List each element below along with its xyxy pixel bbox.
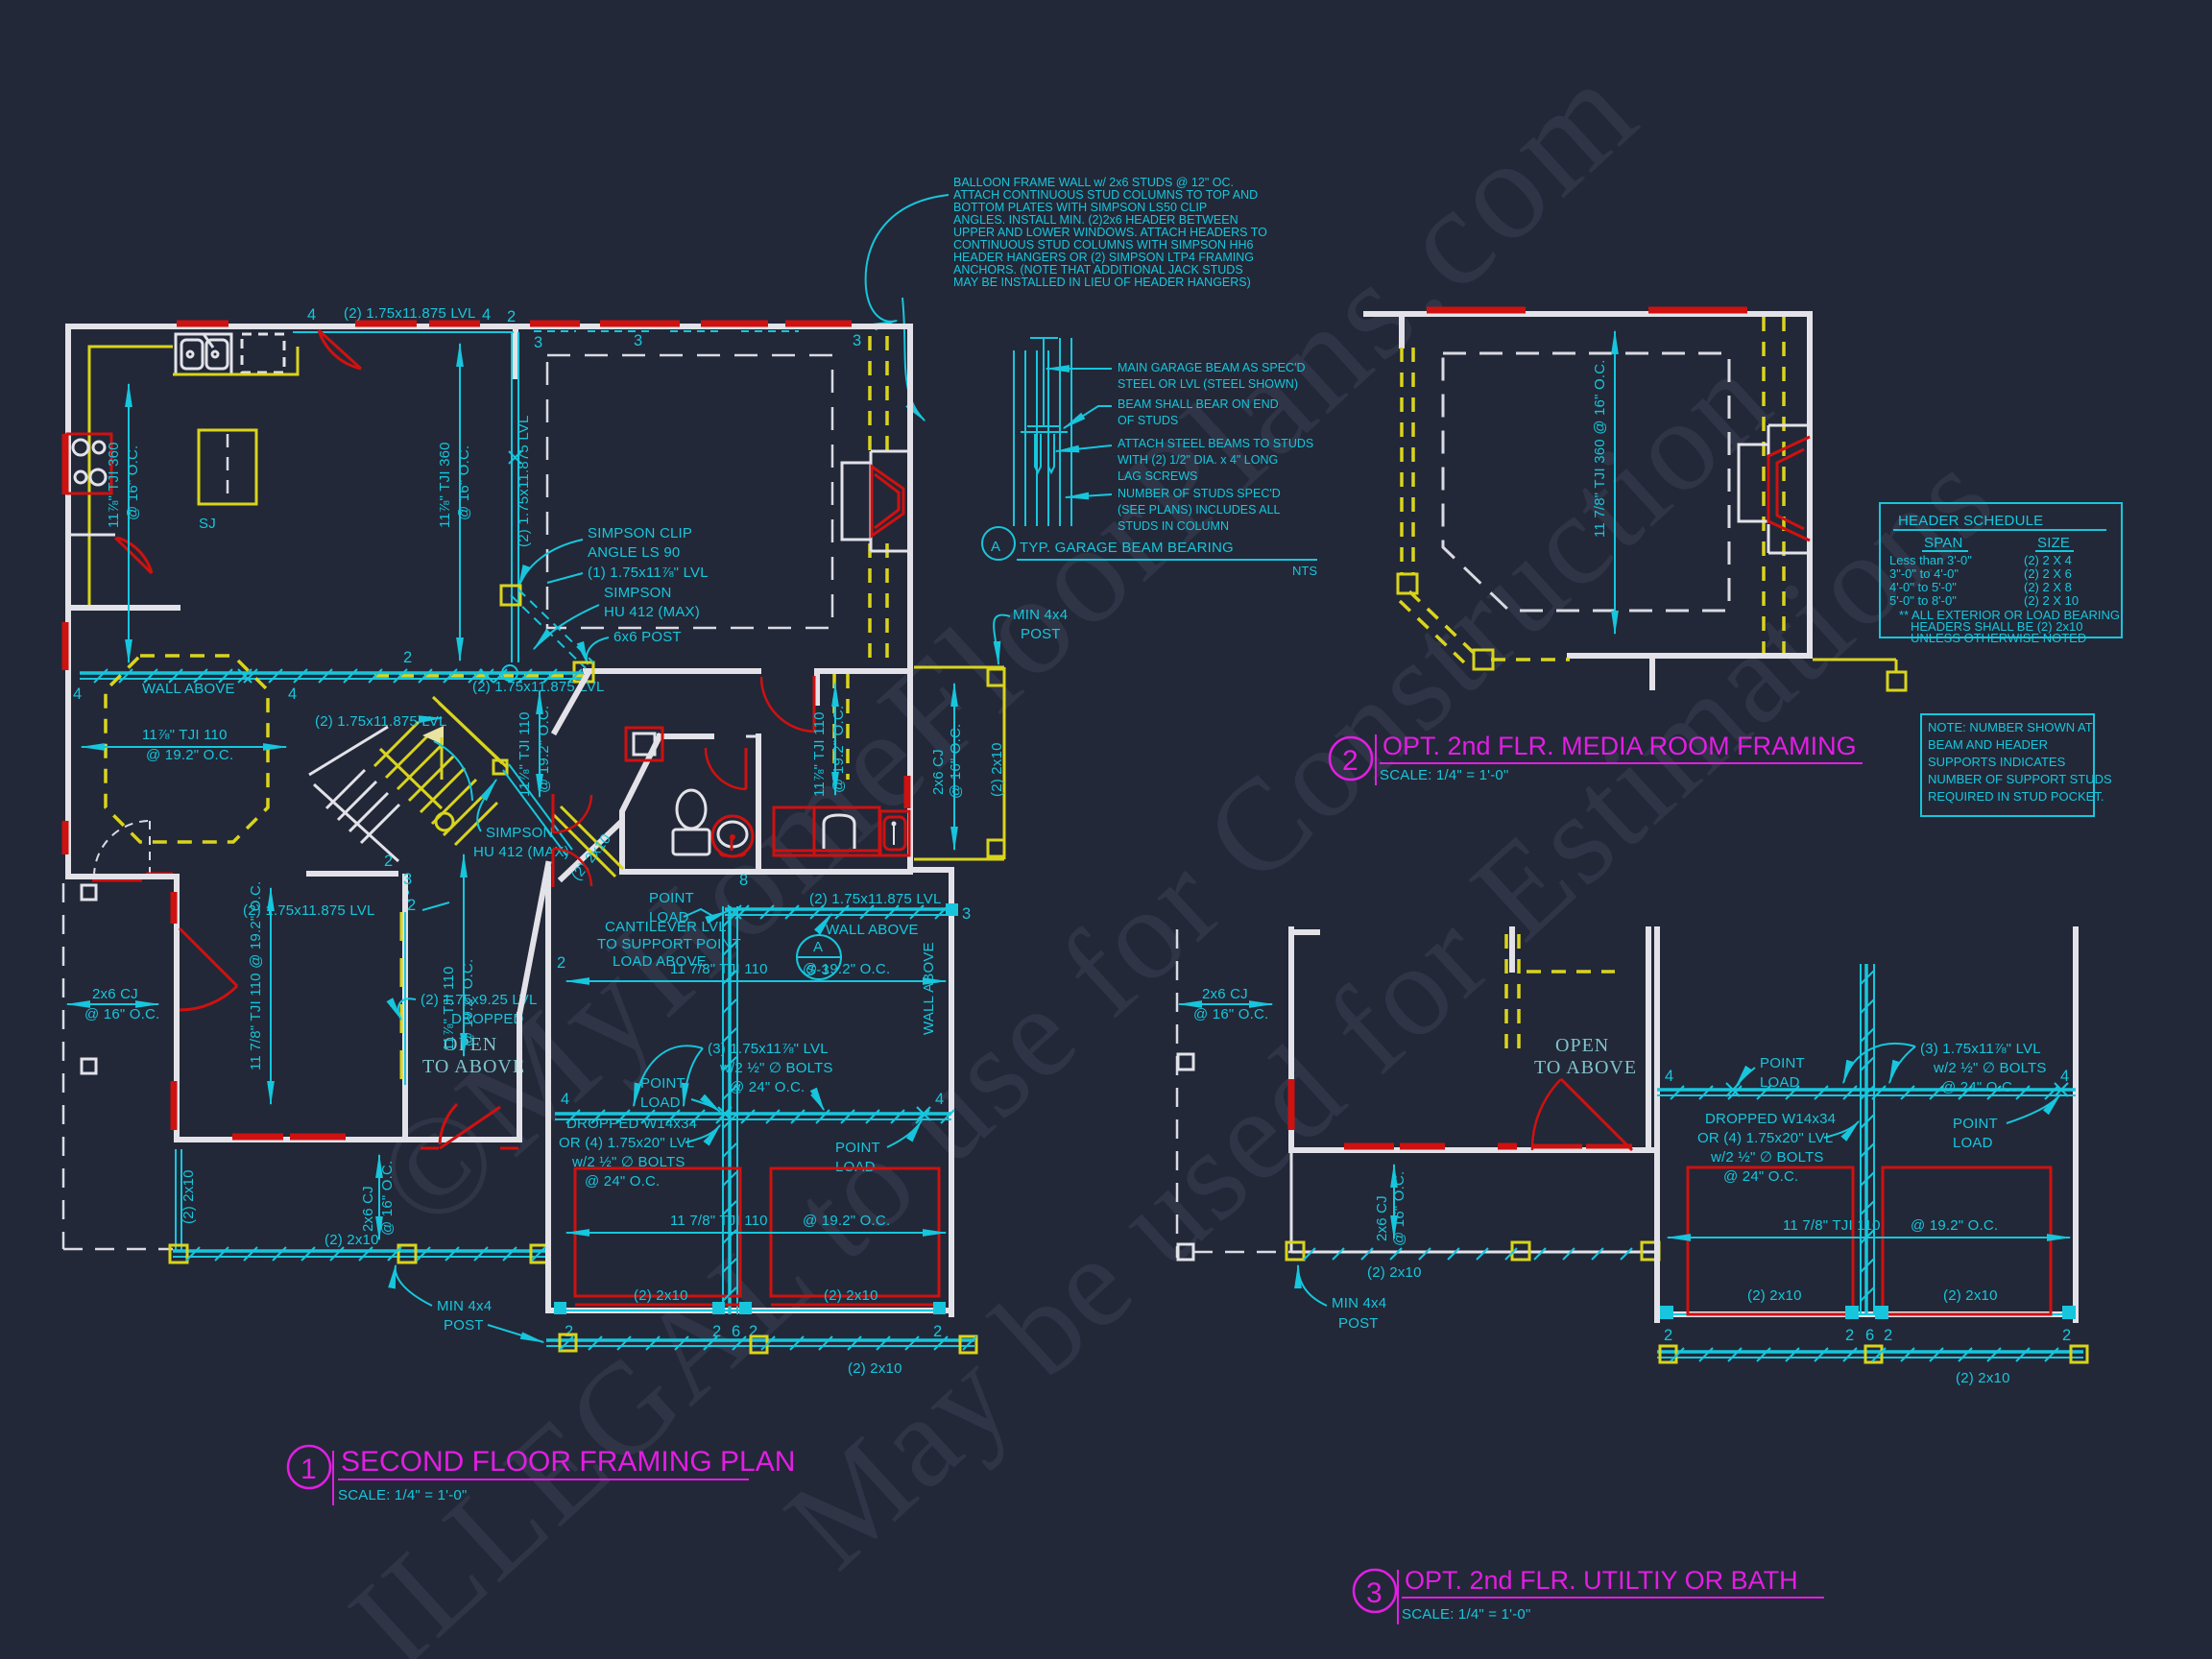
svg-text:SJ: SJ (199, 516, 216, 532)
svg-text:POST: POST (1021, 626, 1061, 642)
svg-text:@ 24" O.C.: @ 24" O.C. (730, 1079, 805, 1095)
svg-text:2: 2 (1845, 1327, 1854, 1344)
svg-text:STEEL OR LVL (STEEL SHOWN): STEEL OR LVL (STEEL SHOWN) (1118, 377, 1298, 391)
svg-text:4: 4 (1665, 1068, 1673, 1085)
svg-text:HU 412 (MAX): HU 412 (MAX) (604, 604, 700, 620)
svg-text:3: 3 (1366, 1577, 1382, 1609)
svg-text:SCALE: 1/4" = 1'-0": SCALE: 1/4" = 1'-0" (1380, 767, 1508, 783)
svg-text:@ 24" O.C.: @ 24" O.C. (1723, 1168, 1798, 1185)
svg-text:SCALE: 1/4" = 1'-0": SCALE: 1/4" = 1'-0" (1402, 1606, 1530, 1623)
svg-text:11⅞" TJI 360: 11⅞" TJI 360 (106, 442, 122, 528)
svg-text:ATTACH STEEL BEAMS TO STUDS: ATTACH STEEL BEAMS TO STUDS (1118, 437, 1313, 450)
svg-text:@ 16" O.C.: @ 16" O.C. (84, 1006, 159, 1022)
svg-text:2: 2 (1664, 1327, 1672, 1344)
svg-text:(2) 2x10: (2) 2x10 (1943, 1287, 1998, 1304)
svg-text:STUDS IN COLUMN: STUDS IN COLUMN (1118, 519, 1229, 533)
svg-text:POINT: POINT (1760, 1055, 1805, 1071)
svg-text:(2) 1.75x11.875 LVL: (2) 1.75x11.875 LVL (315, 713, 447, 730)
svg-text:SIZE: SIZE (2037, 535, 2070, 551)
svg-text:(2) 2 X 4: (2) 2 X 4 (2024, 553, 2072, 567)
svg-text:2: 2 (557, 954, 565, 972)
svg-text:4: 4 (288, 685, 297, 703)
svg-text:OR (4) 1.75x20" LVL: OR (4) 1.75x20" LVL (1697, 1130, 1833, 1146)
svg-text:NUMBER OF STUDS SPEC'D: NUMBER OF STUDS SPEC'D (1118, 487, 1281, 500)
svg-text:@ 24" O.C.: @ 24" O.C. (585, 1173, 660, 1190)
svg-text:3"-0" to 4'-0": 3"-0" to 4'-0" (1889, 566, 1959, 581)
svg-text:(SEE PLANS) INCLUDES ALL: (SEE PLANS) INCLUDES ALL (1118, 503, 1281, 517)
svg-text:2x6 CJ: 2x6 CJ (360, 1186, 376, 1232)
svg-text:w/2 ½" ∅ BOLTS: w/2 ½" ∅ BOLTS (719, 1060, 833, 1076)
svg-text:SIMPSON CLIP: SIMPSON CLIP (588, 525, 692, 541)
svg-text:UNLESS OTHERWISE NOTED: UNLESS OTHERWISE NOTED (1911, 631, 2086, 645)
svg-text:MIN 4x4: MIN 4x4 (1332, 1295, 1386, 1311)
svg-text:2: 2 (933, 1323, 942, 1340)
svg-text:NUMBER OF SUPPORT STUDS: NUMBER OF SUPPORT STUDS (1928, 772, 2112, 786)
svg-text:@ 24" O.C.: @ 24" O.C. (1941, 1079, 2016, 1095)
svg-text:6: 6 (732, 1323, 740, 1340)
svg-text:4: 4 (561, 1091, 569, 1108)
svg-text:(2) 2x10: (2) 2x10 (634, 1287, 688, 1304)
svg-text:3: 3 (534, 334, 542, 351)
svg-text:@ 19.2" O.C.: @ 19.2" O.C. (146, 747, 233, 763)
svg-text:2: 2 (1342, 745, 1358, 777)
svg-text:(2) 1.75x11.875 LVL: (2) 1.75x11.875 LVL (243, 902, 375, 919)
svg-text:2: 2 (1884, 1327, 1892, 1344)
svg-text:POST: POST (444, 1317, 484, 1334)
svg-text:(2) 2 X 10: (2) 2 X 10 (2024, 593, 2079, 608)
svg-text:2x6 CJ: 2x6 CJ (92, 986, 138, 1002)
svg-text:11⅞" TJI 110: 11⅞" TJI 110 (811, 711, 828, 797)
svg-text:(2) 1.75x11.875 LVL: (2) 1.75x11.875 LVL (809, 891, 942, 907)
svg-text:w/2 ½" ∅ BOLTS: w/2 ½" ∅ BOLTS (1710, 1149, 1824, 1166)
svg-text:MAIN GARAGE BEAM AS SPEC'D: MAIN GARAGE BEAM AS SPEC'D (1118, 361, 1306, 374)
svg-text:(2) 2x10: (2) 2x10 (1956, 1370, 2010, 1386)
svg-text:NTS: NTS (1292, 564, 1317, 578)
svg-text:2: 2 (384, 853, 393, 870)
svg-text:REQUIRED IN STUD POCKET.: REQUIRED IN STUD POCKET. (1928, 789, 2104, 804)
svg-text:TO ABOVE: TO ABOVE (1534, 1057, 1637, 1078)
svg-text:CONTINUOUS STUD COLUMNS WITH S: CONTINUOUS STUD COLUMNS WITH SIMPSON HH6 (953, 238, 1254, 252)
svg-text:(1) 1.75x11⅞" LVL: (1) 1.75x11⅞" LVL (588, 565, 709, 581)
svg-text:A: A (991, 539, 1000, 555)
svg-text:POINT: POINT (649, 890, 694, 906)
svg-text:OF STUDS: OF STUDS (1118, 414, 1178, 427)
svg-text:SECOND FLOOR FRAMING PLAN: SECOND FLOOR FRAMING PLAN (341, 1446, 795, 1478)
svg-text:11⅞" TJI 360: 11⅞" TJI 360 (437, 442, 453, 528)
svg-text:11⅞" TJI 110: 11⅞" TJI 110 (441, 966, 457, 1051)
svg-text:HEADER SCHEDULE: HEADER SCHEDULE (1898, 513, 2043, 529)
svg-text:A: A (813, 939, 823, 955)
svg-text:11 7/8" TJI 110: 11 7/8" TJI 110 (670, 1213, 768, 1229)
svg-text:HU 412 (MAX): HU 412 (MAX) (473, 844, 569, 860)
svg-text:2: 2 (407, 897, 416, 914)
svg-text:(2) 2x10: (2) 2x10 (824, 1287, 878, 1304)
svg-text:@ 19.2" O.C.: @ 19.2" O.C. (803, 1213, 890, 1229)
svg-text:DROPPED W14x34: DROPPED W14x34 (1705, 1111, 1836, 1127)
svg-text:SUPPORTS INDICATES: SUPPORTS INDICATES (1928, 755, 2066, 769)
svg-text:MIN 4x4: MIN 4x4 (437, 1298, 492, 1314)
svg-text:6: 6 (1865, 1327, 1874, 1344)
svg-text:11 7/8" TJI 110: 11 7/8" TJI 110 (670, 961, 768, 977)
svg-text:@ 16" O.C.: @ 16" O.C. (456, 445, 472, 520)
svg-text:2x6 CJ: 2x6 CJ (1202, 986, 1248, 1002)
svg-text:BOTTOM PLATES WITH SIMPSON LS5: BOTTOM PLATES WITH SIMPSON LS50 CLIP (953, 201, 1207, 214)
svg-text:11 7/8" TJI 110: 11 7/8" TJI 110 (1783, 1217, 1881, 1234)
svg-text:4: 4 (935, 1091, 944, 1108)
svg-text:TO SUPPORT POINT: TO SUPPORT POINT (597, 936, 741, 952)
svg-text:DROPPED W14x34: DROPPED W14x34 (566, 1116, 697, 1132)
svg-text:(2) 2x10: (2) 2x10 (989, 742, 1005, 797)
svg-text:OPEN: OPEN (1555, 1035, 1609, 1056)
svg-text:NOTE: NUMBER SHOWN AT: NOTE: NUMBER SHOWN AT (1928, 720, 2093, 734)
svg-text:SIMPSON: SIMPSON (486, 825, 554, 841)
svg-text:@ 19.2" O.C.: @ 19.2" O.C. (1911, 1217, 1998, 1234)
svg-text:@ 19.2" O.C.: @ 19.2" O.C. (830, 706, 847, 793)
svg-text:SCALE: 1/4" = 1'-0": SCALE: 1/4" = 1'-0" (338, 1487, 467, 1503)
svg-text:SIMPSON: SIMPSON (604, 585, 672, 601)
svg-text:WALL ABOVE: WALL ABOVE (142, 681, 235, 697)
svg-text:Less than 3'-0": Less than 3'-0" (1889, 553, 1972, 567)
svg-text:(2) 1.75x11.875 LVL: (2) 1.75x11.875 LVL (344, 305, 476, 322)
svg-text:2: 2 (2062, 1327, 2071, 1344)
svg-text:3: 3 (634, 332, 642, 349)
svg-text:@ 16" O.C.: @ 16" O.C. (379, 1161, 396, 1236)
svg-text:1: 1 (301, 1454, 317, 1485)
svg-text:OPT. 2nd FLR. MEDIA ROOM FRAMI: OPT. 2nd FLR. MEDIA ROOM FRAMING (1382, 732, 1857, 760)
svg-text:CANTILEVER LVL: CANTILEVER LVL (605, 919, 727, 935)
svg-text:ATTACH CONTINUOUS STUD COLUMNS: ATTACH CONTINUOUS STUD COLUMNS TO TOP AN… (953, 188, 1258, 202)
svg-text:POST: POST (1338, 1315, 1379, 1332)
svg-text:HEADER HANGERS OR (2) SIMPSON: HEADER HANGERS OR (2) SIMPSON LTP4 FRAMI… (953, 251, 1254, 264)
svg-text:4: 4 (73, 685, 82, 703)
svg-text:MAY BE INSTALLED IN LIEU OF HE: MAY BE INSTALLED IN LIEU OF HEADER HANGE… (953, 276, 1251, 289)
svg-text:(2) 2 X 8: (2) 2 X 8 (2024, 580, 2072, 594)
svg-text:POINT: POINT (1953, 1116, 1998, 1132)
svg-text:BEAM AND HEADER: BEAM AND HEADER (1928, 737, 2048, 752)
svg-text:OR (4) 1.75x20" LVL: OR (4) 1.75x20" LVL (559, 1135, 694, 1151)
svg-text:MIN 4x4: MIN 4x4 (1013, 607, 1068, 623)
svg-text:(3) 1.75x11⅞" LVL: (3) 1.75x11⅞" LVL (708, 1041, 829, 1057)
svg-text:TO ABOVE: TO ABOVE (422, 1056, 525, 1077)
svg-text:@ 16" O.C.: @ 16" O.C. (1391, 1171, 1407, 1246)
svg-text:2: 2 (507, 308, 516, 325)
svg-text:SPAN: SPAN (1924, 535, 1963, 551)
svg-text:LOAD: LOAD (1953, 1135, 1993, 1151)
svg-text:@ 16" O.C.: @ 16" O.C. (1193, 1006, 1268, 1022)
svg-text:(2) 2x10: (2) 2x10 (180, 1169, 197, 1224)
svg-text:(2) 2x10: (2) 2x10 (848, 1360, 902, 1377)
svg-text:3: 3 (962, 905, 971, 923)
svg-text:LOAD: LOAD (640, 1094, 681, 1111)
svg-text:WALL ABOVE: WALL ABOVE (921, 942, 937, 1035)
svg-text:BEAM SHALL BEAR ON END: BEAM SHALL BEAR ON END (1118, 397, 1279, 411)
svg-text:BALLOON FRAME WALL w/ 2x6 STUD: BALLOON FRAME WALL w/ 2x6 STUDS @ 12" OC… (953, 176, 1234, 189)
svg-text:2x6 CJ: 2x6 CJ (1374, 1195, 1390, 1241)
svg-text:5'-0" to 8'-0": 5'-0" to 8'-0" (1889, 593, 1957, 608)
svg-text:WITH (2) 1/2" DIA. x 4" LONG: WITH (2) 1/2" DIA. x 4" LONG (1118, 453, 1278, 467)
svg-text:11 7/8" TJI 360 @ 16" O.C.: 11 7/8" TJI 360 @ 16" O.C. (1592, 359, 1608, 538)
svg-text:(2) 2x10: (2) 2x10 (1367, 1264, 1422, 1281)
svg-text:(3) 1.75x11⅞" LVL: (3) 1.75x11⅞" LVL (1920, 1041, 2041, 1057)
svg-text:@ 16" O.C.: @ 16" O.C. (125, 445, 141, 520)
svg-text:4: 4 (482, 306, 491, 324)
svg-text:(2) 1.75x11.875 LVL: (2) 1.75x11.875 LVL (516, 415, 532, 547)
svg-text:ANCHORS. (NOTE THAT ADDITIONAL: ANCHORS. (NOTE THAT ADDITIONAL JACK STUD… (953, 263, 1243, 276)
svg-text:3: 3 (403, 871, 412, 888)
svg-text:@ 19.2" O.C.: @ 19.2" O.C. (536, 706, 552, 793)
svg-text:4'-0" to 5'-0": 4'-0" to 5'-0" (1889, 580, 1957, 594)
svg-text:8: 8 (739, 872, 748, 889)
svg-text:POINT: POINT (835, 1140, 880, 1156)
svg-text:UPPER AND LOWER WINDOWS. ATTAC: UPPER AND LOWER WINDOWS. ATTACH HEADERS … (953, 226, 1267, 239)
svg-text:4: 4 (2060, 1068, 2069, 1085)
svg-text:ANGLES. INSTALL MIN. (2)2x6 HE: ANGLES. INSTALL MIN. (2)2x6 HEADER BETWE… (953, 213, 1238, 227)
svg-text:WALL ABOVE: WALL ABOVE (826, 922, 919, 938)
svg-text:LAG SCREWS: LAG SCREWS (1118, 469, 1197, 483)
svg-text:4: 4 (307, 306, 316, 324)
svg-text:OPT. 2nd FLR. UTILTIY OR BATH: OPT. 2nd FLR. UTILTIY OR BATH (1405, 1566, 1798, 1595)
svg-text:(2) 2 X 6: (2) 2 X 6 (2024, 566, 2072, 581)
svg-text:11⅞" TJI 110: 11⅞" TJI 110 (142, 727, 228, 743)
svg-text:2x6 CJ: 2x6 CJ (930, 749, 947, 795)
svg-text:@ 19.2" O.C.: @ 19.2" O.C. (460, 959, 476, 1046)
svg-text:(2) 2x10: (2) 2x10 (1747, 1287, 1802, 1304)
svg-text:@ 16" O.C.: @ 16" O.C. (948, 724, 964, 799)
svg-text:(2) 2x10: (2) 2x10 (325, 1232, 379, 1248)
svg-text:w/2 ½" ∅ BOLTS: w/2 ½" ∅ BOLTS (1933, 1060, 2047, 1076)
svg-text:2: 2 (403, 649, 412, 666)
svg-text:6x6 POST: 6x6 POST (613, 629, 682, 645)
svg-text:@ 19.2" O.C.: @ 19.2" O.C. (803, 961, 890, 977)
svg-text:LOAD: LOAD (1760, 1074, 1800, 1091)
svg-text:ANGLE LS 90: ANGLE LS 90 (588, 544, 680, 561)
svg-text:3: 3 (853, 332, 861, 349)
svg-text:POINT: POINT (640, 1075, 685, 1092)
svg-text:TYP. GARAGE BEAM BEARING: TYP. GARAGE BEAM BEARING (1020, 540, 1234, 556)
